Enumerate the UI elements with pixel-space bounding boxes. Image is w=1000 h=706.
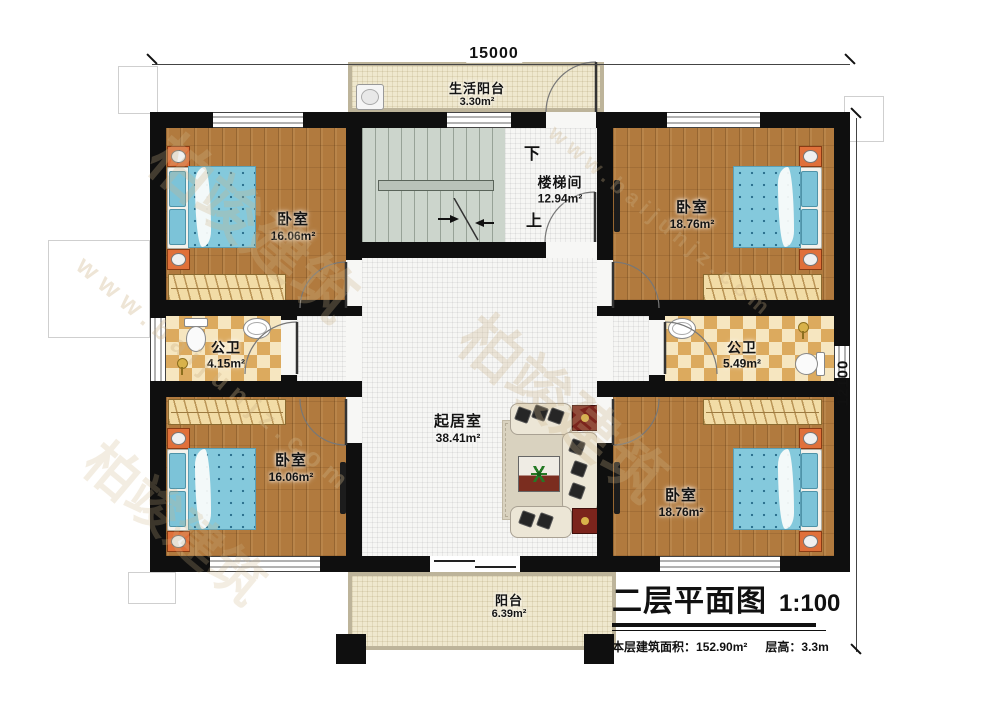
nightstand [799,428,822,449]
door-arc-bedroom-bl [300,399,346,445]
pillow [801,209,818,245]
balcony-pillar [584,634,614,664]
pillow [801,171,818,207]
nightstand [167,249,190,270]
stair-handrail [378,180,494,191]
toilet-bowl [186,326,206,352]
stair-up-label: 上 [526,207,542,231]
door-opening [597,397,613,443]
drawing-title-row: 二层平面图1:100 [612,576,882,620]
pillow [169,491,186,527]
title-rule-thick [612,623,816,627]
roof-outline [48,240,150,338]
wardrobe [168,274,286,301]
dimension-tick [844,53,855,64]
nightstand [167,531,190,552]
window [213,112,303,128]
room-label-bedroom-br: 卧室18.76m² [659,487,704,519]
room-label-life-balcony: 生活阳台3.30m² [449,81,505,109]
title-info-row: 本层建筑面积：152.90m²层高：3.3m [612,638,882,655]
dimension-height: 12100 [835,357,852,410]
tv [340,462,346,514]
wardrobe [168,399,286,425]
bed [188,448,256,530]
corridor-opening [597,316,613,381]
side-table [572,405,598,431]
wardrobe [703,274,822,301]
nightstand [799,249,822,270]
room-label-bedroom-tl: 卧室16.06m² [271,211,316,243]
nightstand [167,428,190,449]
shower-stem [802,331,804,339]
window [210,556,320,572]
pillow [169,171,186,207]
floor-area-value: 152.90m² [696,640,747,654]
door-opening [346,397,362,443]
drawing-scale: 1:100 [779,590,840,617]
door-arc-bedroom-tl [300,262,346,308]
room-label-stairwell: 楼梯间12.94m² [538,175,583,206]
wall-h-left-lower [166,381,346,397]
bottom-balcony [348,572,616,650]
door-arc-bath-right [665,322,717,374]
room-label-bath-right: 公卫5.49m² [723,340,761,371]
story-height-label: 层高： [765,640,801,654]
dimension-tick [146,53,157,64]
corridor-opening [346,316,362,381]
balcony-pillar [336,634,366,664]
dimension-width: 15000 [466,45,522,63]
shower-stem [181,367,183,375]
nightstand [799,531,822,552]
floor-plan-canvas: 生活阳台3.30m² 楼梯间12.94m² 下 上 卧室16.06m² 卧室18… [0,0,1000,706]
bed [733,448,801,530]
sliding-door [430,556,520,572]
window [667,112,760,128]
door-opening [546,242,597,258]
room-label-bedroom-bl: 卧室16.06m² [269,452,314,484]
corridor-right-floor [613,316,649,381]
wall-h-right-lower [613,381,834,397]
roof-outline [118,66,158,114]
room-label-balcony: 阳台6.39m² [492,593,527,621]
pillow [801,491,818,527]
stair-direction-arrow [438,198,494,242]
window [447,112,511,128]
toilet-bowl [795,353,818,375]
wardrobe [703,399,822,425]
tv [614,462,620,514]
door-opening [597,260,613,306]
room-label-bath-left: 公卫4.15m² [207,340,245,371]
door-opening [546,112,596,128]
plant [531,466,547,482]
bed [733,166,801,248]
door-arc-bath-left [245,322,297,374]
dimension-line-top [152,64,850,65]
floor-area-label: 本层建筑面积： [612,640,696,654]
wall-right [834,112,850,572]
door-opening [649,320,665,375]
drawing-title: 二层平面图 [612,585,767,618]
stair-down-label: 下 [524,140,540,164]
roof-outline [128,572,176,604]
dimension-line-right [856,118,857,652]
side-table [572,508,598,534]
bed [188,166,256,248]
room-label-living: 起居室38.41m² [434,413,482,445]
window [150,318,166,381]
window [660,556,780,572]
door-arc-life-balcony [546,62,596,112]
pillow [169,453,186,489]
room-label-bedroom-tr: 卧室18.76m² [670,199,715,231]
pillow [801,453,818,489]
pillow [169,209,186,245]
coffee-table [518,456,560,492]
title-block: 二层平面图1:100 本层建筑面积：152.90m²层高：3.3m [612,576,882,655]
nightstand [167,146,190,167]
washing-machine [356,84,384,110]
roof-outline [844,96,884,142]
story-height-value: 3.3m [801,640,828,654]
door-arc-bedroom-tr [613,262,659,308]
nightstand [799,146,822,167]
tv [614,180,620,232]
title-rule-thin [612,630,826,631]
door-arc-bedroom-br [613,399,659,445]
door-opening [346,260,362,306]
